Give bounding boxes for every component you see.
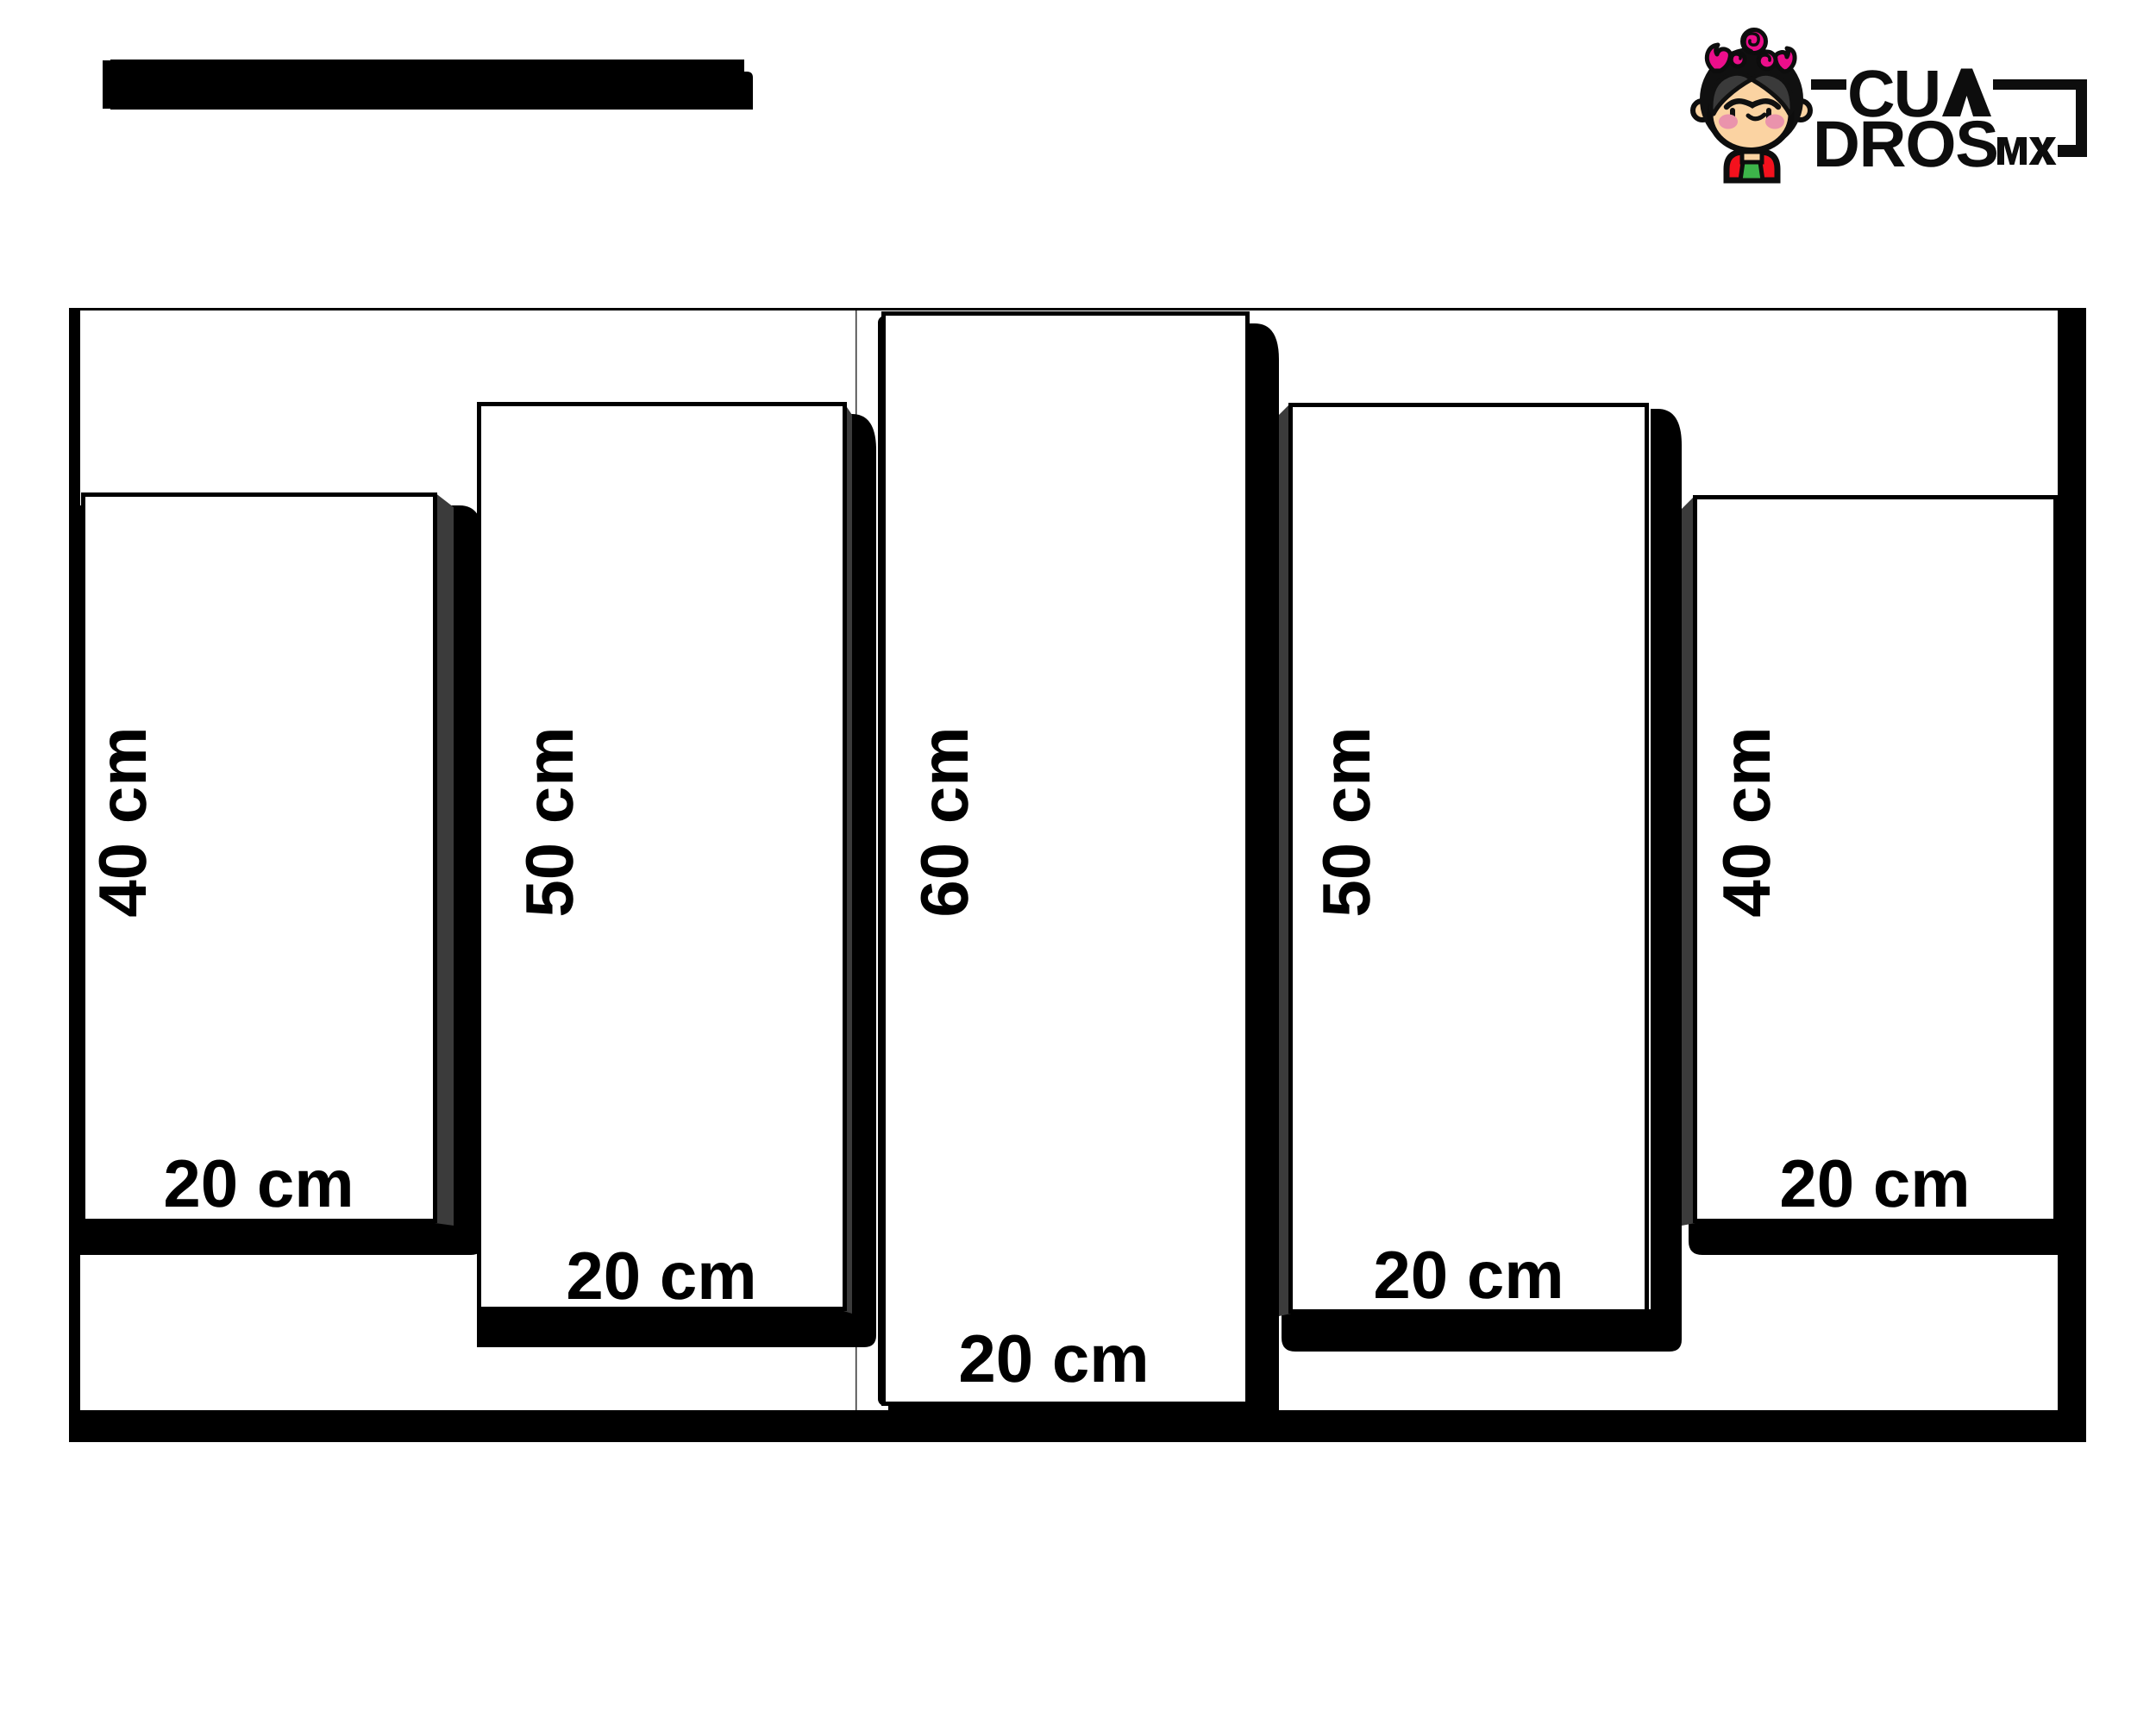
svg-text:40 cm: 40 cm <box>85 726 160 917</box>
svg-text:20 cm: 20 cm <box>958 1320 1149 1396</box>
svg-text:20 cm: 20 cm <box>163 1145 354 1221</box>
svg-text:50 cm: 50 cm <box>511 726 587 917</box>
svg-text:DROS: DROS <box>1813 108 1998 181</box>
svg-text:60 cm: 60 cm <box>906 726 982 917</box>
svg-text:20 cm: 20 cm <box>1373 1237 1564 1313</box>
svg-text:40 cm: 40 cm <box>1708 726 1784 917</box>
svg-text:50 cm: 50 cm <box>1308 726 1384 917</box>
svg-text:20 cm: 20 cm <box>566 1238 756 1314</box>
svg-text:20 cm: 20 cm <box>1779 1145 1970 1221</box>
